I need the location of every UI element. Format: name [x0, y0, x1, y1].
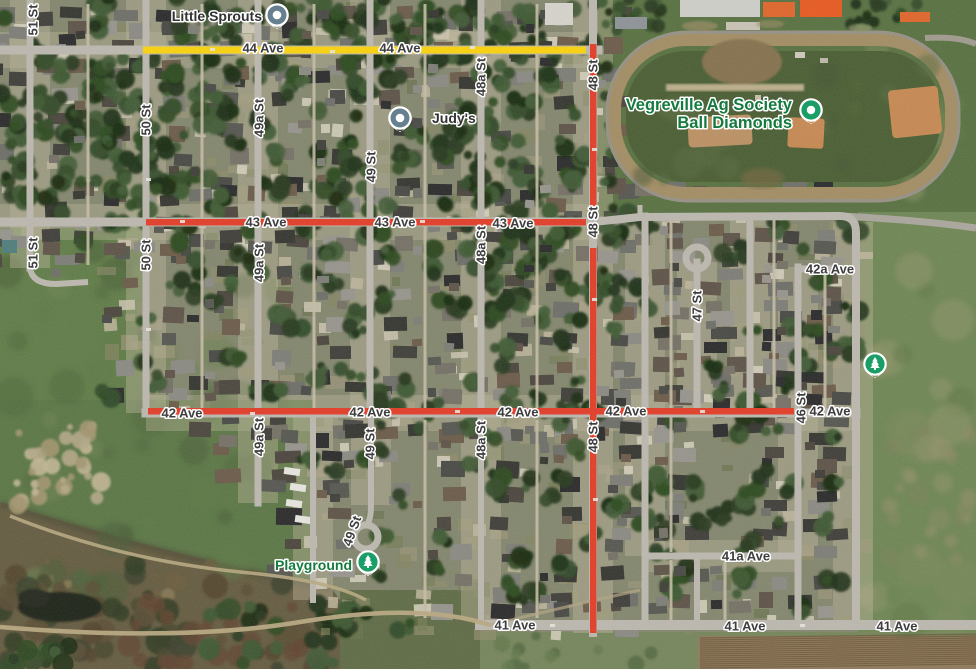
svg-text:49 St: 49 St	[363, 428, 378, 460]
svg-text:43 Ave: 43 Ave	[375, 215, 416, 230]
svg-text:48 St: 48 St	[586, 206, 601, 238]
svg-text:41 Ave: 41 Ave	[877, 619, 918, 634]
svg-text:42 Ave: 42 Ave	[606, 404, 647, 419]
svg-text:49a St: 49a St	[252, 417, 267, 456]
svg-text:42 Ave: 42 Ave	[498, 405, 539, 420]
svg-text:42 Ave: 42 Ave	[162, 406, 203, 421]
svg-text:48 St: 48 St	[586, 59, 601, 91]
svg-text:51 St: 51 St	[26, 237, 41, 269]
svg-text:48a St: 48a St	[474, 57, 489, 96]
svg-text:42 Ave: 42 Ave	[810, 404, 851, 419]
svg-text:42a Ave: 42a Ave	[806, 262, 854, 277]
svg-text:49a St: 49a St	[252, 243, 267, 282]
svg-text:Vegreville Ag Society: Vegreville Ag Society	[626, 96, 793, 114]
svg-text:43 Ave: 43 Ave	[246, 215, 287, 230]
svg-text:Little Sprouts: Little Sprouts	[172, 8, 262, 24]
svg-text:50 St: 50 St	[139, 239, 154, 271]
svg-text:Judy's: Judy's	[432, 110, 476, 126]
svg-text:41 Ave: 41 Ave	[725, 619, 766, 634]
svg-text:44 Ave: 44 Ave	[243, 41, 284, 56]
svg-text:43 Ave: 43 Ave	[493, 216, 534, 231]
svg-text:Playground: Playground	[275, 557, 352, 573]
svg-text:46 St: 46 St	[794, 392, 809, 424]
svg-text:48a St: 48a St	[474, 420, 489, 459]
svg-text:44 Ave: 44 Ave	[380, 41, 421, 56]
svg-text:Ball Diamonds: Ball Diamonds	[677, 114, 792, 132]
svg-text:49a St: 49a St	[252, 98, 267, 137]
svg-text:42 Ave: 42 Ave	[350, 405, 391, 420]
svg-text:50 St: 50 St	[139, 104, 154, 136]
svg-text:47 St: 47 St	[690, 290, 705, 322]
svg-text:49 St: 49 St	[364, 151, 379, 183]
svg-text:41a Ave: 41a Ave	[722, 549, 770, 564]
svg-text:41 Ave: 41 Ave	[495, 618, 536, 633]
svg-text:48a St: 48a St	[474, 225, 489, 264]
svg-text:51 St: 51 St	[26, 4, 41, 36]
svg-text:48 St: 48 St	[586, 421, 601, 453]
